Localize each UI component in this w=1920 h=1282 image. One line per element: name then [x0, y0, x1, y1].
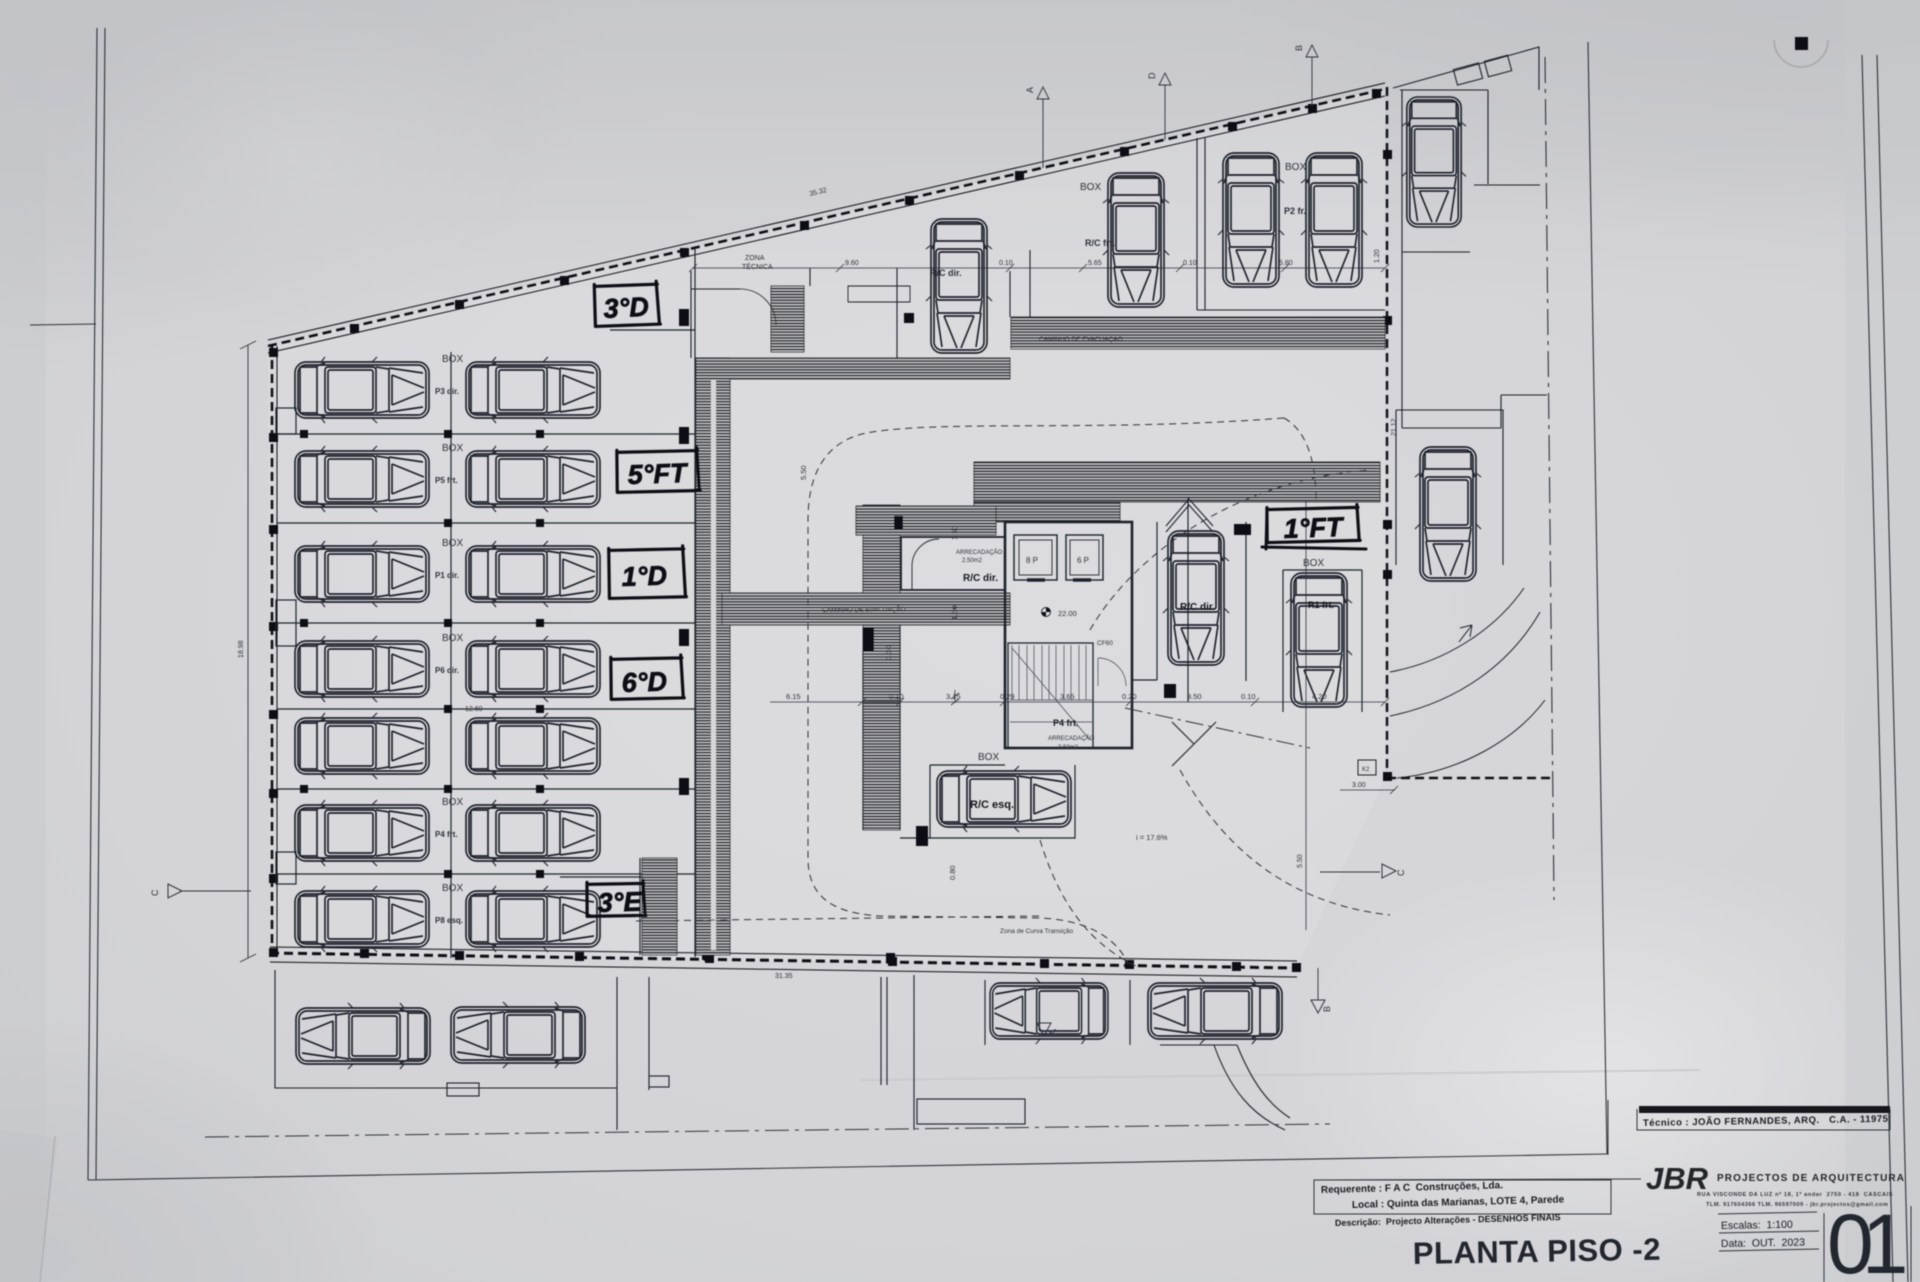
svg-text:C: C: [1396, 869, 1406, 876]
svg-text:A: A: [1025, 87, 1035, 93]
svg-text:6°D: 6°D: [621, 666, 667, 698]
svg-text:P4 frt.: P4 frt.: [435, 830, 458, 839]
svg-text:PLANTA PISO -2: PLANTA PISO -2: [1413, 1232, 1662, 1271]
svg-text:3°E: 3°E: [597, 886, 643, 918]
svg-text:Zona de Curva Transição: Zona de Curva Transição: [1000, 928, 1073, 935]
svg-text:3.65: 3.65: [1060, 692, 1075, 701]
svg-text:P8 esq.: P8 esq.: [435, 916, 463, 925]
svg-text:0.29: 0.29: [1000, 692, 1015, 701]
svg-text:JBR: JBR: [1646, 1161, 1709, 1196]
svg-text:0.10: 0.10: [1241, 692, 1256, 701]
svg-text:2.50m2: 2.50m2: [962, 558, 983, 564]
svg-text:BOX: BOX: [1285, 162, 1306, 173]
svg-text:BOX: BOX: [442, 633, 463, 644]
svg-text:D: D: [1147, 72, 1157, 79]
svg-text:P6 dir.: P6 dir.: [435, 666, 459, 675]
svg-text:BOX: BOX: [442, 538, 463, 549]
svg-text:5°FT: 5°FT: [627, 458, 689, 490]
svg-text:P4 frt.: P4 frt.: [1053, 718, 1079, 728]
svg-text:3.15: 3.15: [946, 692, 961, 701]
svg-text:0.80: 0.80: [948, 865, 957, 880]
svg-text:3.50: 3.50: [1187, 692, 1202, 701]
svg-text:P2 fr.: P2 fr.: [1284, 206, 1306, 216]
svg-text:BOX: BOX: [442, 354, 463, 365]
svg-text:9.60: 9.60: [845, 260, 859, 267]
svg-text:Escalas: 1:100: Escalas: 1:100: [1721, 1219, 1793, 1232]
svg-text:6 P: 6 P: [1077, 556, 1089, 565]
svg-text:R/C dir.: R/C dir.: [1180, 602, 1215, 613]
svg-text:3.50m2: 3.50m2: [1058, 745, 1079, 751]
svg-text:5.65: 5.65: [1088, 260, 1102, 267]
svg-text:0.10: 0.10: [889, 692, 904, 701]
svg-text:P3 dir.: P3 dir.: [435, 387, 459, 396]
svg-text:6.15: 6.15: [786, 692, 801, 701]
svg-text:12.60: 12.60: [465, 706, 483, 713]
svg-text:ARRECADAÇÃO: ARRECADAÇÃO: [956, 549, 1003, 556]
svg-text:21.12: 21.12: [1391, 418, 1398, 436]
svg-text:1°FT: 1°FT: [1283, 512, 1345, 544]
svg-text:CF60: CF60: [1097, 640, 1113, 647]
svg-text:BOX: BOX: [978, 752, 999, 763]
svg-text:0.10: 0.10: [1183, 260, 1197, 267]
svg-text:5.80: 5.80: [1279, 260, 1293, 267]
svg-text:R/C esq.: R/C esq.: [970, 799, 1014, 811]
svg-text:8 P: 8 P: [1026, 556, 1038, 565]
svg-text:01: 01: [1827, 1197, 1905, 1282]
svg-text:Data: OUT. 2023: Data: OUT. 2023: [1721, 1237, 1805, 1250]
svg-text:CAMINHO DE EVACUAÇÃO: CAMINHO DE EVACUAÇÃO: [1039, 334, 1123, 343]
svg-text:1.50: 1.50: [950, 525, 959, 540]
svg-text:0.30: 0.30: [884, 645, 893, 660]
svg-text:3.00: 3.00: [1352, 782, 1366, 789]
svg-text:1.50: 1.50: [950, 605, 959, 620]
svg-text:31.35: 31.35: [775, 973, 793, 980]
svg-text:C: C: [150, 889, 160, 896]
svg-text:1°D: 1°D: [621, 560, 667, 592]
svg-text:5.50: 5.50: [1297, 854, 1304, 868]
svg-text:i = 17.6%: i = 17.6%: [1136, 833, 1168, 842]
svg-text:TÉCNICA: TÉCNICA: [742, 262, 773, 271]
svg-text:P5 frt.: P5 frt.: [435, 476, 458, 485]
svg-text:BOX: BOX: [1080, 182, 1101, 193]
svg-text:0.10: 0.10: [999, 260, 1013, 267]
svg-text:B: B: [1322, 1006, 1332, 1012]
svg-text:22.00: 22.00: [1058, 609, 1077, 618]
svg-text:BOX: BOX: [442, 883, 463, 894]
svg-text:K2: K2: [1362, 767, 1370, 773]
svg-text:R/C dir.: R/C dir.: [963, 573, 998, 584]
svg-text:3°D: 3°D: [603, 292, 650, 324]
svg-text:A: A: [1048, 1029, 1058, 1035]
svg-text:0.20: 0.20: [1122, 692, 1137, 701]
svg-text:P1 dir.: P1 dir.: [435, 571, 459, 580]
svg-text:ZONA: ZONA: [745, 255, 765, 262]
svg-text:R1 frt.: R1 frt.: [1308, 600, 1334, 610]
svg-text:ARRECADAÇÃO: ARRECADAÇÃO: [1048, 735, 1095, 742]
svg-text:18.98: 18.98: [238, 640, 245, 658]
svg-text:PROJECTOS DE ARQUITECTURA: PROJECTOS DE ARQUITECTURA: [1717, 1173, 1905, 1184]
svg-text:1.20: 1.20: [1374, 249, 1381, 263]
svg-text:B: B: [1294, 45, 1304, 51]
svg-text:BOX: BOX: [442, 797, 463, 808]
svg-text:5.50: 5.50: [799, 465, 808, 480]
svg-text:BOX: BOX: [442, 443, 463, 454]
